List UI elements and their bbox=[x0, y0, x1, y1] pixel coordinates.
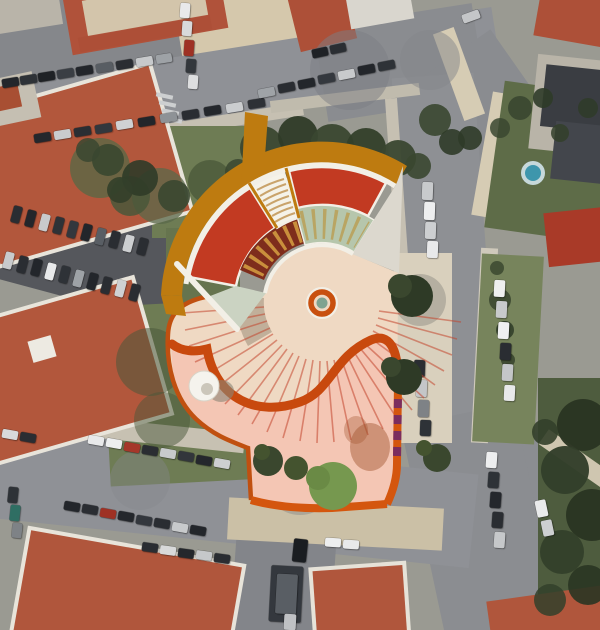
plaza-bush bbox=[254, 444, 270, 460]
plaza-tree-bright bbox=[306, 466, 330, 490]
plaza-tree bbox=[284, 456, 308, 480]
site-plan-overlay bbox=[0, 0, 600, 630]
fountain-basin bbox=[317, 298, 328, 309]
satellite-map bbox=[0, 0, 600, 630]
perimeter-band-tail bbox=[161, 295, 186, 316]
ground-stain-small bbox=[344, 416, 368, 444]
plaza-tree bbox=[381, 357, 401, 377]
plaza-tree bbox=[388, 274, 412, 298]
plaza-tree bbox=[416, 440, 432, 456]
dome-highlight bbox=[201, 383, 213, 395]
